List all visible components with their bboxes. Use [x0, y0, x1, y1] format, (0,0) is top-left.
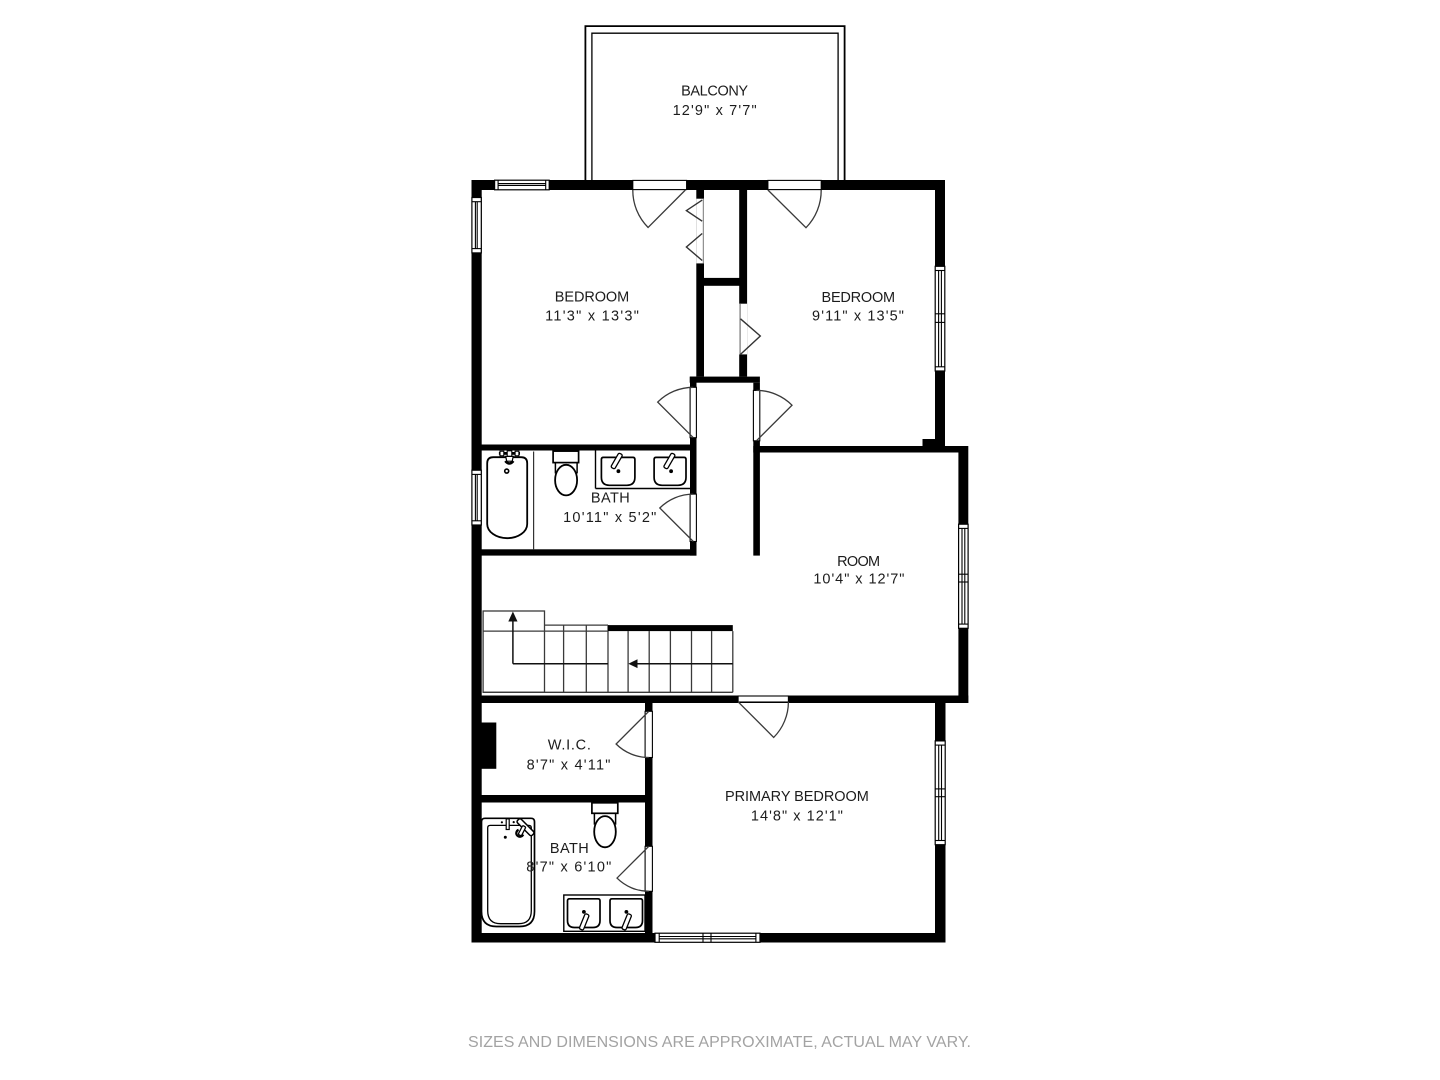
svg-text:BATH: BATH: [550, 841, 589, 857]
svg-text:12'9" x 7'7": 12'9" x 7'7": [673, 103, 757, 119]
svg-text:BATH: BATH: [591, 490, 630, 506]
svg-text:BEDROOM: BEDROOM: [822, 290, 896, 306]
svg-text:BEDROOM: BEDROOM: [555, 290, 629, 306]
svg-text:W.I.C.: W.I.C.: [548, 738, 591, 754]
svg-text:8'7" x 6'10": 8'7" x 6'10": [526, 860, 611, 876]
svg-text:PRIMARY BEDROOM: PRIMARY BEDROOM: [725, 789, 869, 805]
svg-text:8'7" x 4'11": 8'7" x 4'11": [527, 757, 611, 773]
svg-text:10'4" x 12'7": 10'4" x 12'7": [813, 571, 904, 587]
svg-text:10'11" x 5'2": 10'11" x 5'2": [563, 510, 656, 526]
svg-text:9'11" x 13'5": 9'11" x 13'5": [812, 308, 904, 324]
svg-text:11'3" x 13'3": 11'3" x 13'3": [545, 309, 639, 325]
svg-text:SIZES AND DIMENSIONS ARE APPRO: SIZES AND DIMENSIONS ARE APPROXIMATE, AC…: [468, 1034, 971, 1051]
svg-text:BALCONY: BALCONY: [681, 84, 748, 100]
svg-text:14'8" x 12'1": 14'8" x 12'1": [751, 809, 843, 825]
svg-text:ROOM: ROOM: [837, 554, 880, 570]
